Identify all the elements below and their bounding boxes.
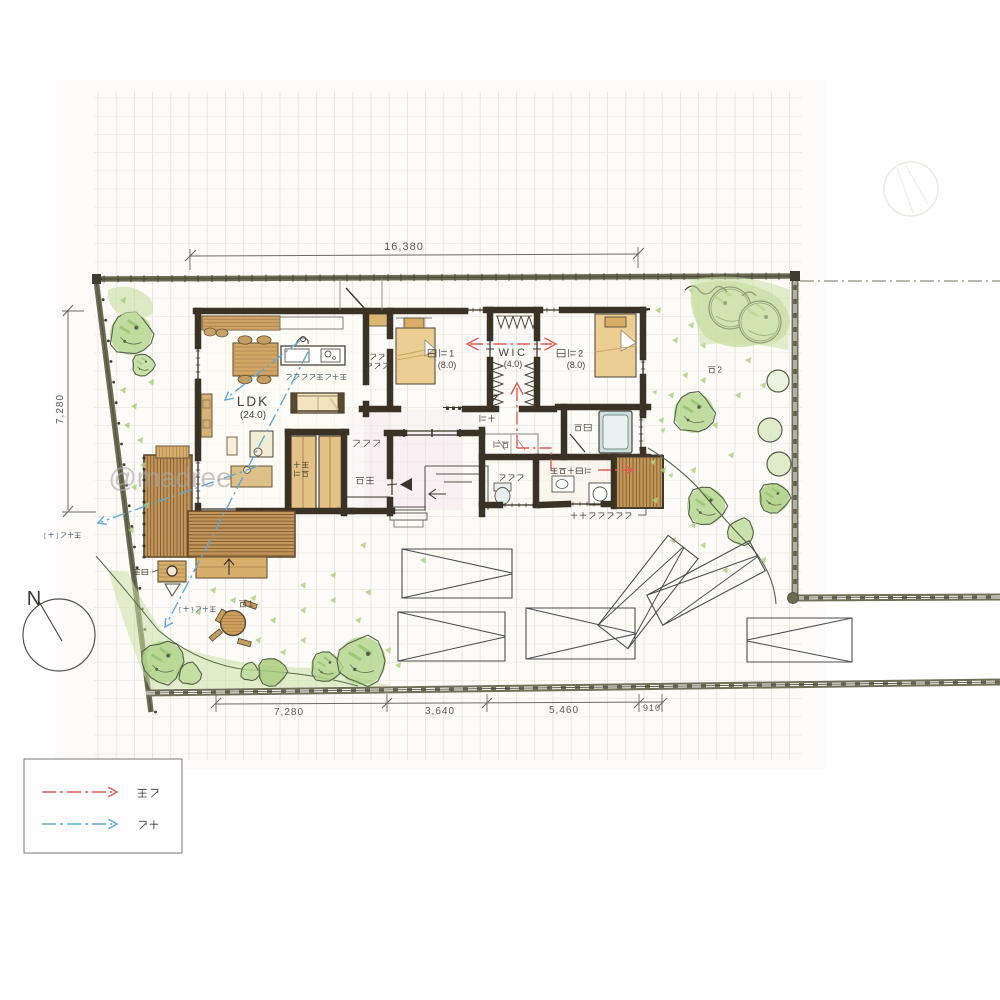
svg-text:(8.0): (8.0) — [438, 360, 457, 370]
svg-text:2: 2 — [718, 365, 723, 374]
svg-text:@madree: @madree — [108, 462, 231, 493]
svg-text:910: 910 — [643, 703, 661, 713]
svg-text:7,280: 7,280 — [274, 707, 304, 718]
svg-text:5,460: 5,460 — [549, 705, 579, 716]
svg-text:(8.0): (8.0) — [567, 360, 586, 370]
svg-text:(24.0): (24.0) — [240, 410, 266, 421]
svg-text:16,380: 16,380 — [384, 241, 424, 253]
svg-text:LDK: LDK — [237, 394, 269, 409]
svg-text:3,640: 3,640 — [425, 706, 455, 717]
svg-text:7,280: 7,280 — [55, 394, 66, 424]
svg-text:[: [ — [44, 532, 46, 539]
svg-text:2: 2 — [578, 348, 583, 358]
svg-text:WIC: WIC — [499, 347, 528, 359]
svg-text:1: 1 — [249, 599, 254, 608]
svg-text:1: 1 — [449, 348, 454, 358]
svg-text:]: ] — [56, 532, 58, 539]
svg-text:N: N — [27, 588, 41, 610]
svg-text:[: [ — [179, 606, 181, 613]
svg-text:]: ] — [191, 606, 193, 613]
svg-text:(4.0): (4.0) — [504, 359, 523, 369]
